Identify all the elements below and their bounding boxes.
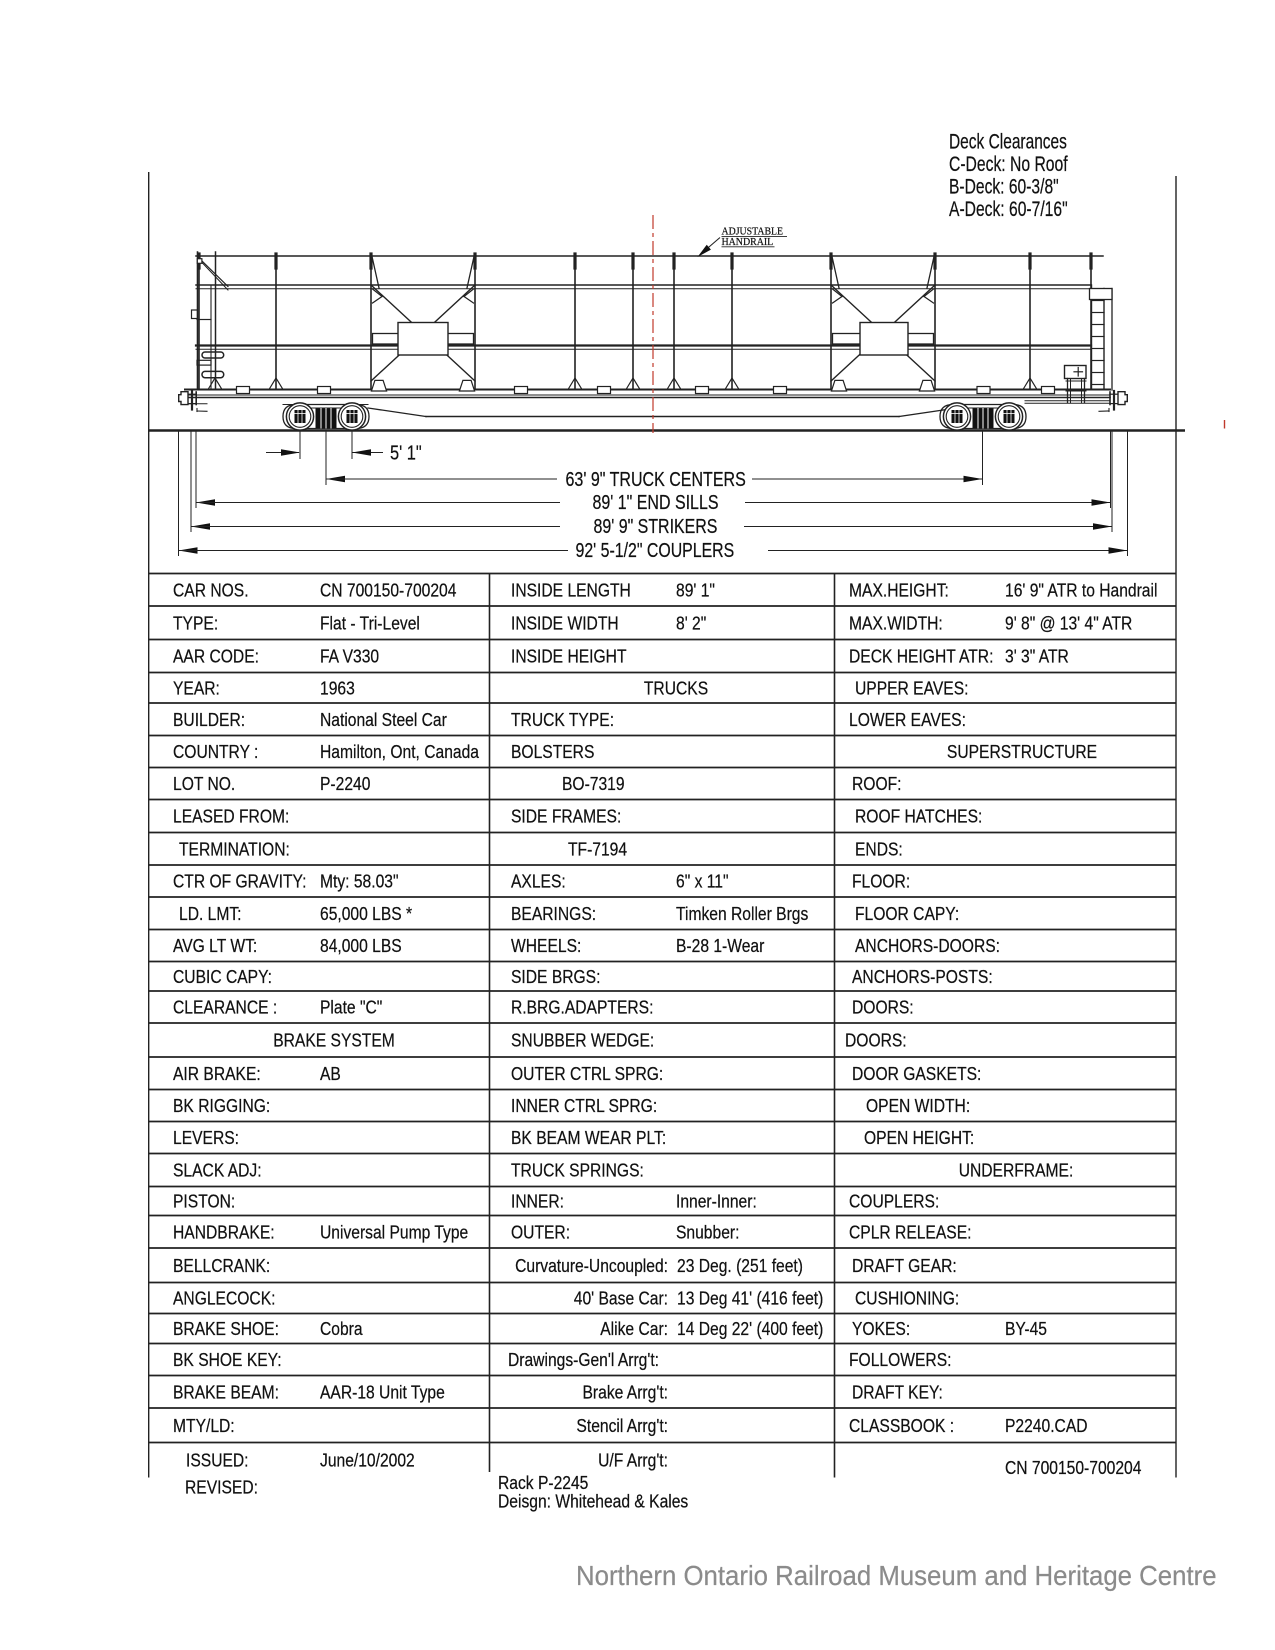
svg-text:Plate "C": Plate "C"	[320, 997, 382, 1017]
svg-text:CAR NOS.: CAR NOS.	[173, 580, 249, 600]
svg-text:14 Deg 22' (400 feet): 14 Deg 22' (400 feet)	[677, 1319, 823, 1339]
svg-text:COUNTRY :: COUNTRY :	[173, 742, 258, 762]
svg-text:BK SHOE KEY:: BK SHOE KEY:	[173, 1350, 282, 1370]
svg-text:INNER CTRL SPRG:: INNER CTRL SPRG:	[511, 1096, 657, 1116]
svg-text:BRAKE SYSTEM: BRAKE SYSTEM	[273, 1030, 395, 1050]
svg-text:LEASED FROM:: LEASED FROM:	[173, 806, 289, 826]
svg-text:8' 2": 8' 2"	[676, 613, 706, 633]
svg-text:6" x 11": 6" x 11"	[676, 871, 729, 891]
svg-text:P-2240: P-2240	[320, 774, 370, 794]
svg-text:BY-45: BY-45	[1005, 1319, 1047, 1339]
svg-text:COUPLERS:: COUPLERS:	[849, 1191, 939, 1211]
svg-text:INSIDE LENGTH: INSIDE LENGTH	[511, 580, 631, 600]
svg-text:89' 1": 89' 1"	[676, 580, 715, 600]
svg-text:SUPERSTRUCTURE: SUPERSTRUCTURE	[947, 742, 1097, 762]
svg-text:R.BRG.ADAPTERS:: R.BRG.ADAPTERS:	[511, 997, 653, 1017]
svg-text:Deisgn: Whitehead & Kales: Deisgn: Whitehead & Kales	[498, 1491, 688, 1511]
svg-text:Cobra: Cobra	[320, 1319, 363, 1339]
svg-text:AAR-18 Unit Type: AAR-18 Unit Type	[320, 1382, 445, 1402]
svg-text:Mty: 58.03": Mty: 58.03"	[320, 871, 399, 891]
svg-text:B-Deck: 60-3/8": B-Deck: 60-3/8"	[949, 174, 1059, 198]
svg-text:LOT NO.: LOT NO.	[173, 774, 235, 794]
svg-text:63' 9" TRUCK CENTERS: 63' 9" TRUCK CENTERS	[566, 467, 746, 490]
svg-text:OUTER CTRL SPRG:: OUTER CTRL SPRG:	[511, 1064, 663, 1084]
svg-text:AXLES:: AXLES:	[511, 871, 566, 891]
svg-text:INSIDE WIDTH: INSIDE WIDTH	[511, 613, 619, 633]
svg-text:CLASSBOOK :: CLASSBOOK :	[849, 1416, 954, 1436]
svg-text:DECK HEIGHT ATR:: DECK HEIGHT ATR:	[849, 646, 993, 666]
svg-text:Inner-Inner:: Inner-Inner:	[676, 1191, 757, 1211]
svg-text:BRAKE SHOE:: BRAKE SHOE:	[173, 1319, 279, 1339]
svg-text:TERMINATION:: TERMINATION:	[179, 839, 290, 859]
svg-text:Flat - Tri-Level: Flat - Tri-Level	[320, 613, 420, 633]
svg-text:CN 700150-700204: CN 700150-700204	[320, 580, 456, 600]
svg-text:CTR OF GRAVITY:: CTR OF GRAVITY:	[173, 871, 306, 891]
svg-text:A-Deck: 60-7/16": A-Deck: 60-7/16"	[949, 197, 1068, 221]
svg-text:65,000 LBS *: 65,000 LBS *	[320, 904, 412, 924]
svg-text:June/10/2002: June/10/2002	[320, 1450, 415, 1470]
svg-text:84,000 LBS: 84,000 LBS	[320, 936, 402, 956]
svg-text:DRAFT KEY:: DRAFT KEY:	[852, 1382, 943, 1402]
svg-text:LOWER EAVES:: LOWER EAVES:	[849, 710, 966, 730]
svg-text:B-28 1-Wear: B-28 1-Wear	[676, 936, 765, 956]
svg-text:ROOF HATCHES:: ROOF HATCHES:	[855, 806, 982, 826]
svg-text:BK RIGGING:: BK RIGGING:	[173, 1096, 270, 1116]
svg-text:BELLCRANK:: BELLCRANK:	[173, 1256, 270, 1276]
svg-text:DOOR GASKETS:: DOOR GASKETS:	[852, 1064, 981, 1084]
svg-text:U/F Arrg't:: U/F Arrg't:	[598, 1450, 668, 1470]
svg-text:MTY/LD:: MTY/LD:	[173, 1416, 235, 1436]
svg-text:ROOF:: ROOF:	[852, 774, 901, 794]
svg-text:Stencil Arrg't:: Stencil Arrg't:	[576, 1416, 668, 1436]
svg-text:OPEN WIDTH:: OPEN WIDTH:	[866, 1096, 970, 1116]
svg-text:WHEELS:: WHEELS:	[511, 936, 581, 956]
svg-text:DOORS:: DOORS:	[845, 1030, 907, 1050]
svg-text:13 Deg 41' (416 feet): 13 Deg 41' (416 feet)	[677, 1288, 823, 1308]
svg-text:MAX.HEIGHT:: MAX.HEIGHT:	[849, 580, 949, 600]
svg-text:UPPER EAVES:: UPPER EAVES:	[855, 678, 968, 698]
svg-text:FLOOR:: FLOOR:	[852, 871, 910, 891]
svg-text:40' Base Car:: 40' Base Car:	[574, 1288, 668, 1308]
svg-text:BOLSTERS: BOLSTERS	[511, 742, 594, 762]
svg-text:ANGLECOCK:: ANGLECOCK:	[173, 1288, 275, 1308]
svg-text:BK BEAM WEAR PLT:: BK BEAM WEAR PLT:	[511, 1128, 666, 1148]
svg-text:UNDERFRAME:: UNDERFRAME:	[959, 1160, 1074, 1180]
svg-text:Drawings-Gen'l Arrg't:: Drawings-Gen'l Arrg't:	[508, 1350, 659, 1370]
svg-text:P2240.CAD: P2240.CAD	[1005, 1416, 1088, 1436]
svg-text:92' 5-1/2" COUPLERS: 92' 5-1/2" COUPLERS	[576, 538, 735, 561]
svg-text:BUILDER:: BUILDER:	[173, 710, 245, 730]
svg-text:HANDBRAKE:: HANDBRAKE:	[173, 1222, 275, 1242]
svg-text:Universal Pump Type: Universal Pump Type	[320, 1222, 468, 1242]
svg-text:FA V330: FA V330	[320, 646, 379, 666]
svg-text:BEARINGS:: BEARINGS:	[511, 904, 596, 924]
svg-text:ANCHORS-DOORS:: ANCHORS-DOORS:	[855, 936, 1000, 956]
svg-text:C-Deck: No Roof: C-Deck: No Roof	[949, 152, 1068, 176]
svg-text:ENDS:: ENDS:	[855, 839, 903, 859]
svg-text:Northern Ontario Railroad Muse: Northern Ontario Railroad Museum and Her…	[576, 1560, 1217, 1591]
svg-text:CPLR RELEASE:: CPLR RELEASE:	[849, 1222, 971, 1242]
svg-text:REVISED:: REVISED:	[185, 1477, 258, 1497]
svg-text:SIDE FRAMES:: SIDE FRAMES:	[511, 806, 621, 826]
svg-text:9' 8" @ 13' 4" ATR: 9' 8" @ 13' 4" ATR	[1005, 613, 1132, 633]
svg-text:TF-7194: TF-7194	[568, 839, 627, 859]
svg-text:Curvature-Uncoupled:: Curvature-Uncoupled:	[515, 1256, 668, 1276]
svg-text:TYPE:: TYPE:	[173, 613, 218, 633]
svg-text:National Steel Car: National Steel Car	[320, 710, 447, 730]
svg-text:BRAKE BEAM:: BRAKE BEAM:	[173, 1382, 279, 1402]
svg-text:SLACK ADJ:: SLACK ADJ:	[173, 1160, 262, 1180]
svg-text:FOLLOWERS:: FOLLOWERS:	[849, 1350, 951, 1370]
svg-text:ISSUED:: ISSUED:	[186, 1450, 249, 1470]
svg-text:TRUCKS: TRUCKS	[644, 678, 708, 698]
svg-text:BO-7319: BO-7319	[562, 774, 625, 794]
svg-text:ANCHORS-POSTS:: ANCHORS-POSTS:	[852, 967, 993, 987]
svg-text:YEAR:: YEAR:	[173, 678, 220, 698]
svg-text:INSIDE HEIGHT: INSIDE HEIGHT	[511, 646, 627, 666]
svg-text:TRUCK TYPE:: TRUCK TYPE:	[511, 710, 614, 730]
svg-text:PISTON:: PISTON:	[173, 1191, 235, 1211]
svg-text:89' 1" END SILLS: 89' 1" END SILLS	[593, 490, 719, 513]
svg-text:Rack P-2245: Rack P-2245	[498, 1473, 588, 1493]
svg-text:DOORS:: DOORS:	[852, 997, 914, 1017]
svg-text:CLEARANCE :: CLEARANCE :	[173, 997, 277, 1017]
svg-text:AB: AB	[320, 1064, 341, 1084]
svg-text:AAR CODE:: AAR CODE:	[173, 646, 259, 666]
svg-text:Snubber:: Snubber:	[676, 1222, 739, 1242]
svg-text:CUBIC CAPY:: CUBIC CAPY:	[173, 967, 272, 987]
svg-text:YOKES:: YOKES:	[852, 1319, 910, 1339]
svg-text:MAX.WIDTH:: MAX.WIDTH:	[849, 613, 943, 633]
svg-text:3' 3" ATR: 3' 3" ATR	[1005, 646, 1069, 666]
svg-text:OPEN HEIGHT:: OPEN HEIGHT:	[864, 1128, 974, 1148]
svg-text:16' 9" ATR to Handrail: 16' 9" ATR to Handrail	[1005, 580, 1157, 600]
svg-text:LEVERS:: LEVERS:	[173, 1128, 239, 1148]
svg-text:INNER:: INNER:	[511, 1191, 564, 1211]
svg-text:AIR BRAKE:: AIR BRAKE:	[173, 1064, 261, 1084]
svg-text:DRAFT GEAR:: DRAFT GEAR:	[852, 1256, 957, 1276]
svg-text:89' 9" STRIKERS: 89' 9" STRIKERS	[594, 514, 718, 537]
svg-text:CN 700150-700204: CN 700150-700204	[1005, 1458, 1141, 1478]
svg-text:Timken Roller Brgs: Timken Roller Brgs	[676, 904, 808, 924]
svg-text:Hamilton, Ont, Canada: Hamilton, Ont, Canada	[320, 742, 479, 762]
svg-text:SNUBBER WEDGE:: SNUBBER WEDGE:	[511, 1030, 654, 1050]
svg-text:1963: 1963	[320, 678, 355, 698]
svg-text:TRUCK SPRINGS:: TRUCK SPRINGS:	[511, 1160, 644, 1180]
svg-text:AVG LT WT:: AVG LT WT:	[173, 936, 257, 956]
svg-text:SIDE BRGS:: SIDE BRGS:	[511, 967, 600, 987]
svg-text:Brake Arrg't:: Brake Arrg't:	[583, 1382, 668, 1402]
svg-text:OUTER:: OUTER:	[511, 1222, 570, 1242]
svg-text:5' 1": 5' 1"	[390, 441, 422, 464]
svg-text:Alike Car:: Alike Car:	[600, 1319, 668, 1339]
svg-text:Deck Clearances: Deck Clearances	[949, 129, 1067, 153]
svg-text:23 Deg. (251 feet): 23 Deg. (251 feet)	[677, 1256, 803, 1276]
svg-text:CUSHIONING:: CUSHIONING:	[855, 1288, 959, 1308]
svg-text:LD. LMT:: LD. LMT:	[179, 904, 242, 924]
svg-text:FLOOR CAPY:: FLOOR CAPY:	[855, 904, 959, 924]
